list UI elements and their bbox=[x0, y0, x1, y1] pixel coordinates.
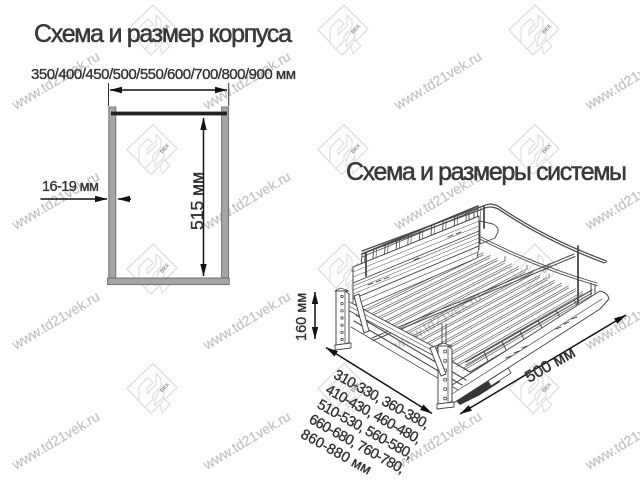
svg-text:Схема и размеры системы: Схема и размеры системы bbox=[346, 158, 627, 186]
svg-text:www.td21vek.ru: www.td21vek.ru bbox=[8, 288, 102, 353]
svg-text:350/400/450/500/550/600/700/80: 350/400/450/500/550/600/700/800/900 мм bbox=[31, 66, 296, 83]
svg-text:160 мм: 160 мм bbox=[294, 293, 310, 341]
svg-text:www.td21vek.ru: www.td21vek.ru bbox=[199, 168, 293, 233]
svg-text:www.td21vek.ru: www.td21vek.ru bbox=[8, 408, 102, 473]
svg-text:Схема и размер корпуса: Схема и размер корпуса bbox=[34, 20, 292, 48]
svg-text:16-19 мм: 16-19 мм bbox=[42, 179, 99, 195]
svg-text:www.td21vek.ru: www.td21vek.ru bbox=[581, 48, 640, 113]
svg-text:www.td21vek.ru: www.td21vek.ru bbox=[8, 168, 102, 233]
svg-text:www.td21vek.ru: www.td21vek.ru bbox=[199, 288, 293, 353]
svg-text:www.td21vek.ru: www.td21vek.ru bbox=[199, 408, 293, 473]
svg-text:www.td21vek.ru: www.td21vek.ru bbox=[581, 408, 640, 473]
svg-text:www.td21vek.ru: www.td21vek.ru bbox=[390, 48, 484, 113]
svg-text:515 мм: 515 мм bbox=[187, 172, 207, 230]
